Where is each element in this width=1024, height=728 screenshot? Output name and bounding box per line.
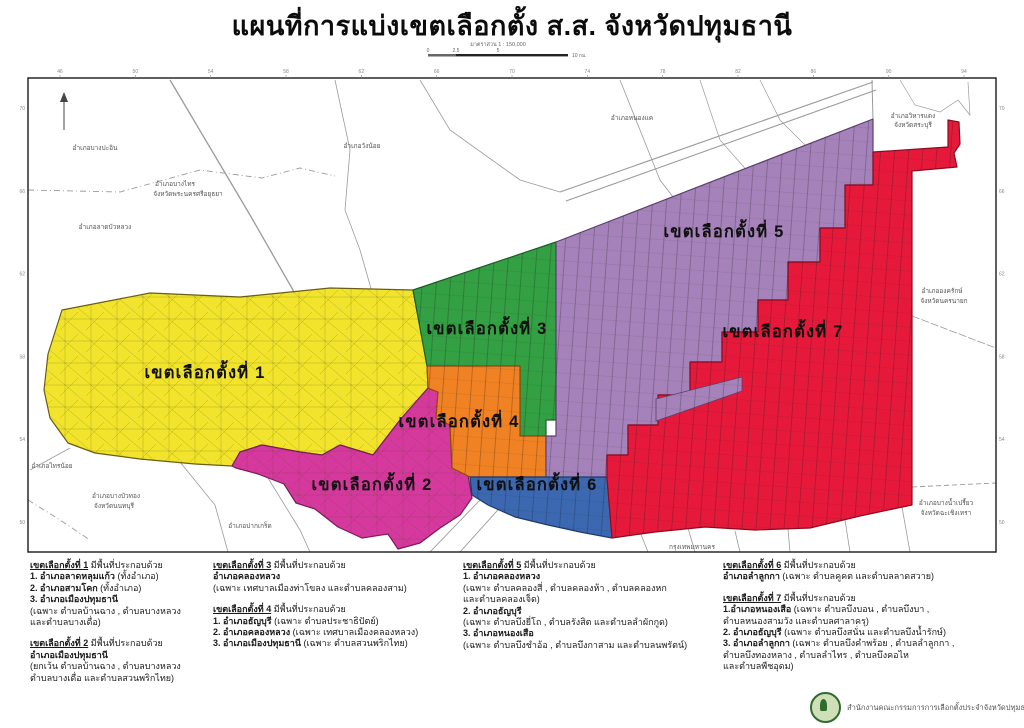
road-line xyxy=(335,80,372,292)
scale-bar-seg xyxy=(428,54,456,56)
neighbor-label: อำเภอบางปะอิน xyxy=(73,144,118,152)
legend-block: เขตเลือกตั้งที่ 5 มีพื้นที่ประกอบด้วย1. … xyxy=(463,560,713,651)
legend-line: และตำบลพืชอุดม) xyxy=(723,661,998,672)
neighbor-label: จังหวัดนครนายก xyxy=(920,297,967,305)
grid-tick-label: 94 xyxy=(961,69,967,75)
scale-tick-1: 2.5 xyxy=(453,48,460,54)
grid-tick-label: 82 xyxy=(735,69,741,75)
legend-line: (เฉพาะ ตำบลบ้านฉาง , ตำบลบางหลวง xyxy=(30,606,210,617)
road-line xyxy=(912,483,996,487)
legend-block-title: เขตเลือกตั้งที่ 4 มีพื้นที่ประกอบด้วย xyxy=(213,604,458,615)
grid-tick-label: 62 xyxy=(359,69,365,75)
legend-line: 1. อำเภอธัญบุรี (เฉพาะ ตำบลประชาธิปัตย์) xyxy=(213,616,458,627)
road-line xyxy=(845,520,850,552)
legend-block: เขตเลือกตั้งที่ 6 มีพื้นที่ประกอบด้วยอำเ… xyxy=(723,560,998,583)
road-line xyxy=(912,316,996,348)
ect-logo-icon xyxy=(810,692,841,723)
scale-tick-end: 10 กม. xyxy=(572,53,587,59)
grid-tick-label: 66 xyxy=(999,189,1005,195)
legend-line: (เฉพาะ ตำบลบึงชำอ้อ , ตำบลบึงกาสาม และตำ… xyxy=(463,640,713,651)
legend-column-2: เขตเลือกตั้งที่ 3 มีพื้นที่ประกอบด้วยอำเ… xyxy=(213,560,458,660)
legend-line: 2. อำเภอคลองหลวง (เฉพาะ เทศบาลเมืองคลองห… xyxy=(213,627,458,638)
legend-column-1: เขตเลือกตั้งที่ 1 มีพื้นที่ประกอบด้วย1. … xyxy=(30,560,210,694)
legend-line: 1. อำเภอลาดหลุมแก้ว (ทั้งอำเภอ) xyxy=(30,571,210,582)
road-line xyxy=(872,80,873,120)
legend-line: 1.อำเภอหนองเสือ (เฉพาะ ตำบลบึงบอน , ตำบล… xyxy=(723,604,998,615)
grid-tick-label: 66 xyxy=(19,189,25,195)
neighbor-label: อำเภอปากเกร็ด xyxy=(228,521,272,530)
grid-tick-label: 50 xyxy=(999,520,1005,526)
grid-tick-label: 66 xyxy=(434,69,440,75)
road-line xyxy=(28,500,90,540)
legend-line: 3. อำเภอเมืองปทุมธานี xyxy=(30,594,210,605)
road-line xyxy=(735,531,740,552)
grid-tick-label: 54 xyxy=(208,69,214,75)
neighbor-label: อำเภอหนองแค xyxy=(611,114,653,122)
grid-tick-label: 74 xyxy=(585,69,591,75)
north-arrow-icon xyxy=(60,92,68,130)
legend-line: 3. อำเภอลำลูกกา (เฉพาะ ตำบลบึงคำพร้อย , … xyxy=(723,638,998,649)
road-line xyxy=(788,529,790,552)
neighbor-label: อำเภอวิหารแดง xyxy=(891,112,936,120)
district-3-label: เขตเลือกตั้งที่ 3 xyxy=(426,316,547,338)
neighbor-label: อำเภอลาดบัวหลวง xyxy=(79,223,132,231)
legend-block: เขตเลือกตั้งที่ 1 มีพื้นที่ประกอบด้วย1. … xyxy=(30,560,210,628)
legend-line: 1. อำเภอคลองหลวง xyxy=(463,571,713,582)
legend-block: เขตเลือกตั้งที่ 4 มีพื้นที่ประกอบด้วย1. … xyxy=(213,604,458,650)
legend-block-title: เขตเลือกตั้งที่ 3 มีพื้นที่ประกอบด้วย xyxy=(213,560,458,571)
district-1-label: เขตเลือกตั้งที่ 1 xyxy=(144,360,265,382)
legend-column-3: เขตเลือกตั้งที่ 5 มีพื้นที่ประกอบด้วย1. … xyxy=(463,560,713,661)
grid-tick-label: 46 xyxy=(57,69,63,75)
grid-tick-label: 58 xyxy=(283,69,289,75)
grid-tick-label: 62 xyxy=(999,272,1005,278)
legend-line: 3. อำเภอหนองเสือ xyxy=(463,628,713,639)
road-line xyxy=(420,80,560,192)
legend-block-title: เขตเลือกตั้งที่ 6 มีพื้นที่ประกอบด้วย xyxy=(723,560,998,571)
legend-column-4: เขตเลือกตั้งที่ 6 มีพื้นที่ประกอบด้วยอำเ… xyxy=(723,560,998,683)
road-line xyxy=(902,507,910,552)
district-7-label: เขตเลือกตั้งที่ 7 xyxy=(722,319,843,341)
grid-tick-label: 70 xyxy=(509,69,515,75)
grid-tick-label: 62 xyxy=(19,272,25,278)
scale-bar: มาตราส่วน 1 : 150,000 0 2.5 5 10 กม. xyxy=(427,41,587,59)
grid-tick-label: 70 xyxy=(999,106,1005,112)
legend-line: และตำบลบางเดื่อ) xyxy=(30,617,210,628)
neighbor-label: อำเภอไทรน้อย xyxy=(31,462,72,470)
grid-tick-label: 86 xyxy=(811,69,817,75)
footer-org-name: สำนักงานคณะกรรมการการเลือกตั้งประจำจังหว… xyxy=(847,702,1024,714)
district-6-label: เขตเลือกตั้งที่ 6 xyxy=(476,472,597,494)
neighbor-label: กรุงเทพมหานคร xyxy=(669,544,715,551)
grid-tick-label: 58 xyxy=(999,354,1005,360)
road-line xyxy=(900,80,970,115)
district-5-label: เขตเลือกตั้งที่ 5 xyxy=(663,219,784,241)
road-line xyxy=(640,532,648,552)
neighbor-label: จังหวัดนนทบุรี xyxy=(94,502,134,510)
legend-line: 2. อำเภอสามโคก (ทั้งอำเภอ) xyxy=(30,583,210,594)
neighbor-label: อำเภอบางบัวทอง xyxy=(92,492,140,500)
legend-line: ตำบลบางเดื่อ และตำบลสวนพริกไทย) xyxy=(30,673,210,684)
scale-caption: มาตราส่วน 1 : 150,000 xyxy=(470,41,526,48)
footer: สำนักงานคณะกรรมการการเลือกตั้งประจำจังหว… xyxy=(810,692,1024,723)
road-line xyxy=(28,168,335,192)
grid-tick-label: 54 xyxy=(999,437,1005,443)
scale-tick-0: 0 xyxy=(427,48,430,54)
neighbor-label: อำเภอบางไทร xyxy=(155,180,195,188)
grid-tick-label: 50 xyxy=(133,69,139,75)
grid-tick-label: 70 xyxy=(19,106,25,112)
legend-line: อำเภอเมืองปทุมธานี xyxy=(30,650,210,661)
grid-tick-label: 54 xyxy=(19,437,25,443)
legend-line: อำเภอลำลูกกา (เฉพาะ ตำบลคูคต และตำบลลาดส… xyxy=(723,571,998,582)
neighbor-label: อำเภอวังน้อย xyxy=(344,142,381,150)
legend-line: (เฉพาะ ตำบลบึงยี่โถ , ตำบลรังสิต และตำบล… xyxy=(463,617,713,628)
legend-line: ตำบลหนองสามวัง และตำบลศาลาครุ) xyxy=(723,616,998,627)
neighbor-label: จังหวัดฉะเชิงเทรา xyxy=(921,509,972,517)
legend-line: (เฉพาะ เทศบาลเมืองท่าโขลง และตำบลคลองสาม… xyxy=(213,583,458,594)
legend-block-title: เขตเลือกตั้งที่ 5 มีพื้นที่ประกอบด้วย xyxy=(463,560,713,571)
neighbor-label: อำเภอบางน้ำเปรี้ยว xyxy=(919,498,974,507)
legend-block-title: เขตเลือกตั้งที่ 7 มีพื้นที่ประกอบด้วย xyxy=(723,593,998,604)
legend-block-title: เขตเลือกตั้งที่ 2 มีพื้นที่ประกอบด้วย xyxy=(30,638,210,649)
district-2-label: เขตเลือกตั้งที่ 2 xyxy=(311,472,432,494)
legend-block: เขตเลือกตั้งที่ 2 มีพื้นที่ประกอบด้วยอำเ… xyxy=(30,638,210,684)
grid-tick-label: 50 xyxy=(19,520,25,526)
legend-line: (ยกเว้น ตำบลบ้านฉาง , ตำบลบางหลวง xyxy=(30,661,210,672)
scale-tick-2: 5 xyxy=(497,48,500,54)
neighbor-label: จังหวัดสระบุรี xyxy=(894,121,932,129)
legend-line: 2. อำเภอธัญบุรี xyxy=(463,606,713,617)
grid-tick-label: 58 xyxy=(19,354,25,360)
grid-tick-label: 90 xyxy=(886,69,892,75)
legend-line: อำเภอคลองหลวง xyxy=(213,571,458,582)
legend-line: 3. อำเภอเมืองปทุมธานี (เฉพาะ ตำบลสวนพริก… xyxy=(213,638,458,649)
legend-block-title: เขตเลือกตั้งที่ 1 มีพื้นที่ประกอบด้วย xyxy=(30,560,210,571)
neighbor-label: อำเภอองครักษ์ xyxy=(921,287,963,295)
legend-block: เขตเลือกตั้งที่ 7 มีพื้นที่ประกอบด้วย1.อ… xyxy=(723,593,998,673)
neighbor-label: จังหวัดพระนครศรีอยุธยา xyxy=(153,190,223,198)
legend-line: 2. อำเภอธัญบุรี (เฉพาะ ตำบลบึงสนั่น และต… xyxy=(723,627,998,638)
legend-line: และตำบลคลองเจ็ด) xyxy=(463,594,713,605)
district-4-label: เขตเลือกตั้งที่ 4 xyxy=(398,409,519,431)
poster-page: แผนที่การแบ่งเขตเลือกตั้ง ส.ส. จังหวัดปท… xyxy=(0,0,1024,728)
grid-tick-label: 78 xyxy=(660,69,666,75)
legend-line: ตำบลบึงทองหลาง , ตำบลลำไทร , ตำบลบึงคอไห xyxy=(723,650,998,661)
road-line xyxy=(180,462,228,552)
legend-block: เขตเลือกตั้งที่ 3 มีพื้นที่ประกอบด้วยอำเ… xyxy=(213,560,458,594)
legend-line: (เฉพาะ ตำบลคลองสี่ , ตำบลคลองห้า , ตำบลค… xyxy=(463,583,713,594)
